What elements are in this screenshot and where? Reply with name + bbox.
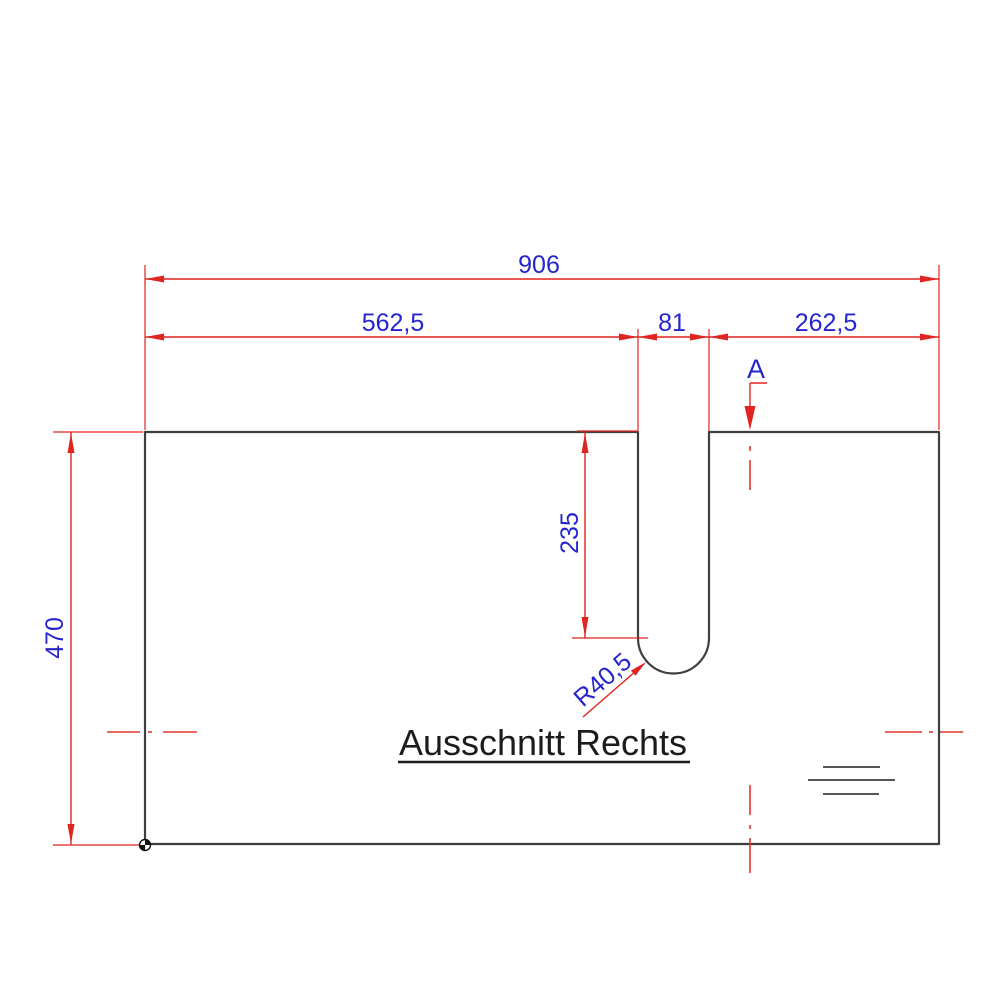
stacked-lines-symbol xyxy=(808,767,895,794)
dim-value-right-segment: 262,5 xyxy=(795,309,858,337)
cad-drawing-view: 906 562,5 81 262,5 470 235 R40,5 A Aussc… xyxy=(0,0,1000,1000)
dim-value-slot-width: 81 xyxy=(658,309,686,337)
origin-marker xyxy=(140,840,151,851)
section-label: A xyxy=(747,354,765,384)
dim-value-slot-radius: R40,5 xyxy=(568,648,637,713)
section-arrow xyxy=(745,406,756,430)
dim-value-overall-height: 470 xyxy=(41,617,69,659)
drawing-svg: 906 562,5 81 262,5 470 235 R40,5 A Aussc… xyxy=(0,0,1000,1000)
section-marker-a xyxy=(745,383,768,490)
dim-value-overall-width: 906 xyxy=(518,251,560,279)
dim-value-slot-depth: 235 xyxy=(556,512,584,554)
view-title: Ausschnitt Rechts xyxy=(399,722,687,763)
dim-value-left-segment: 562,5 xyxy=(362,309,425,337)
part-outline xyxy=(145,432,939,844)
